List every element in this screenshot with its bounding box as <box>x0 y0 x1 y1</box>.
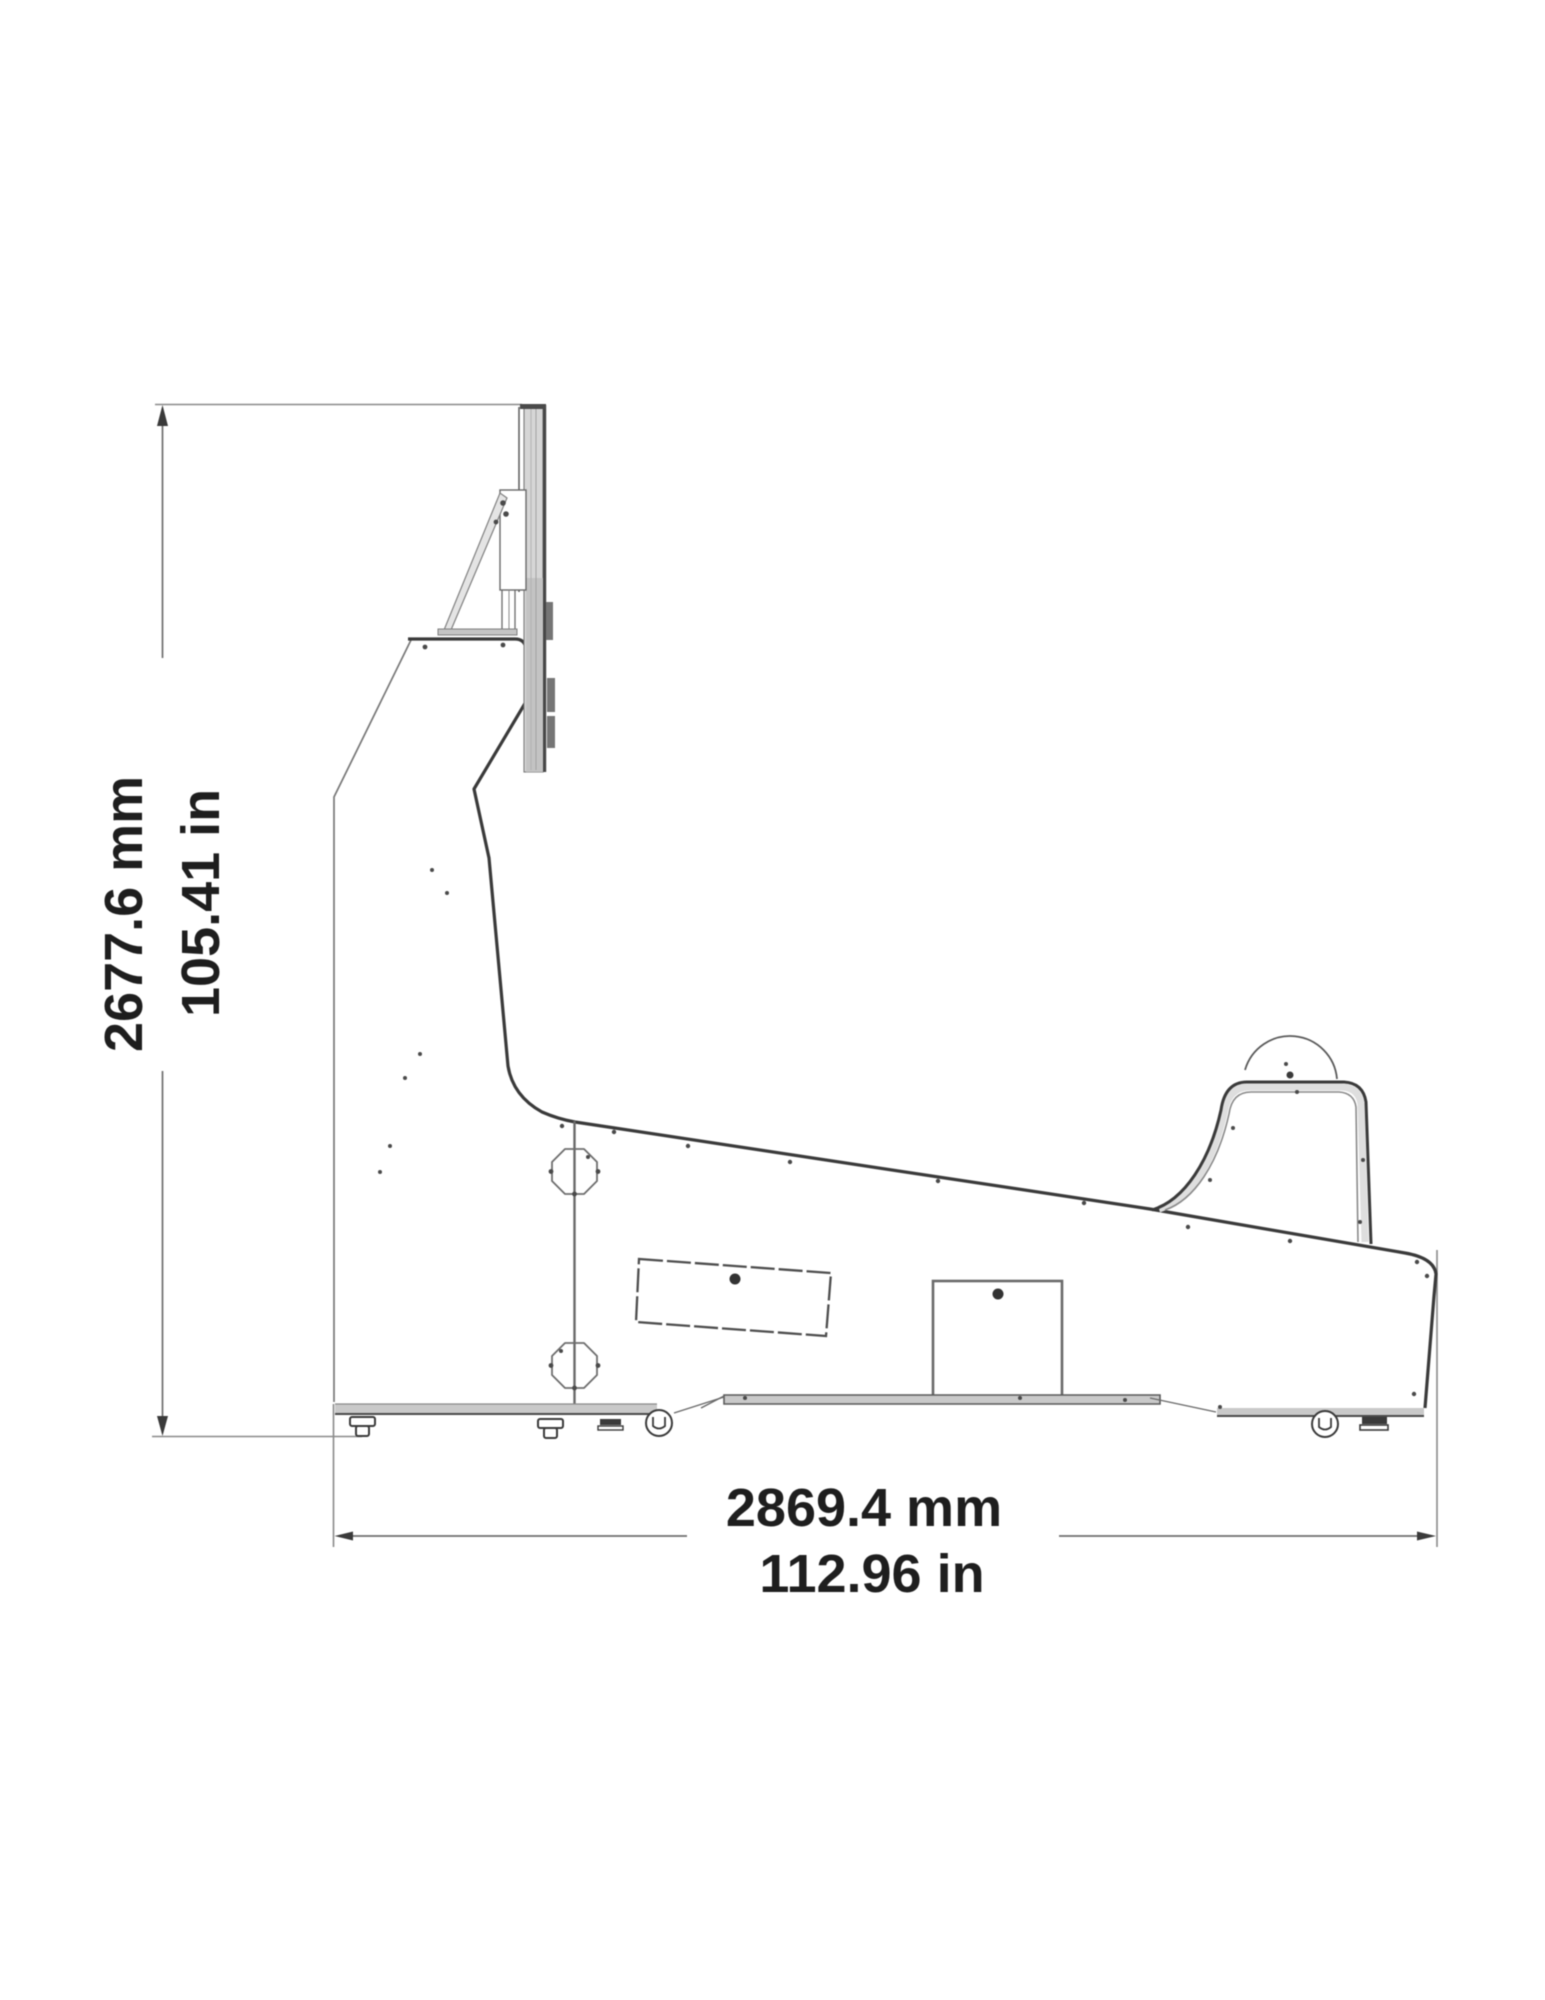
svg-text:2677.6 mm: 2677.6 mm <box>94 776 154 1052</box>
svg-text:2869.4 mm: 2869.4 mm <box>726 1478 1002 1538</box>
svg-text:112.96 in: 112.96 in <box>759 1544 984 1604</box>
svg-text:105.41 in: 105.41 in <box>171 789 231 1017</box>
